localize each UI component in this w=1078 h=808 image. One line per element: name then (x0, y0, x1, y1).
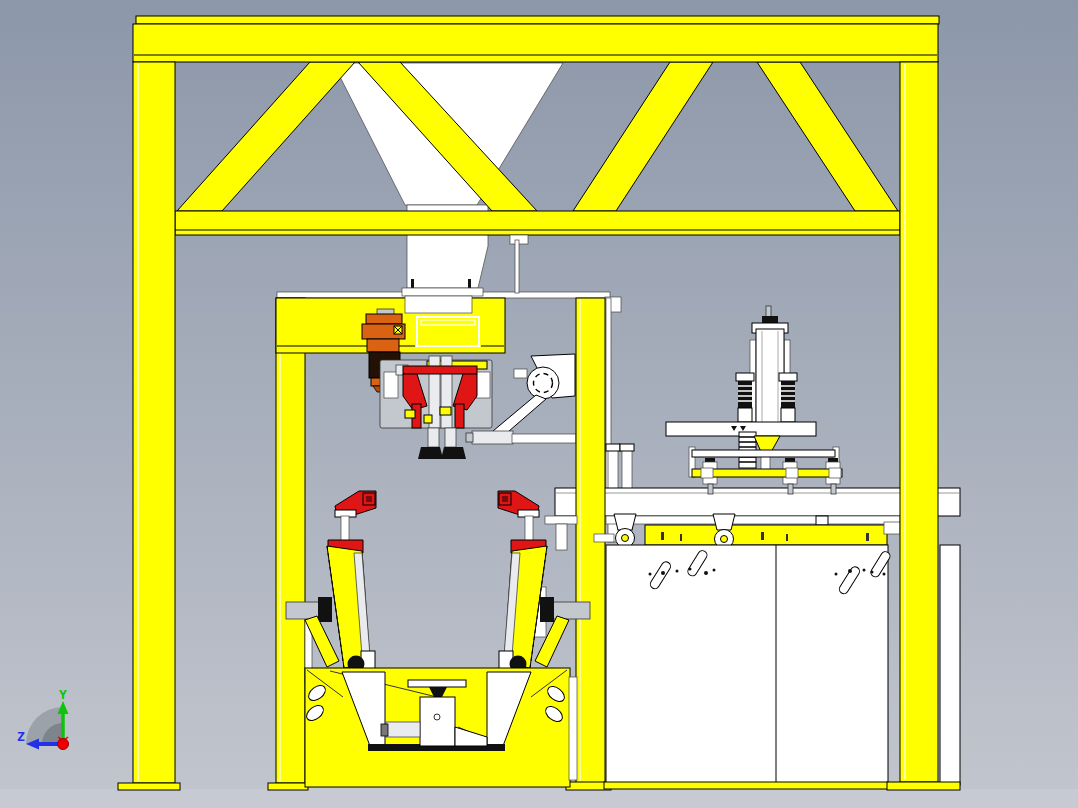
left-column-base (118, 783, 180, 790)
truss-bottom-chord (175, 211, 900, 235)
chute-bolt (468, 279, 471, 288)
gripper-cylinder-right (445, 428, 456, 447)
conveyor-beam-body (555, 488, 960, 516)
top-beam (133, 24, 938, 62)
roller-hub (622, 535, 629, 542)
strip-tab (816, 516, 828, 525)
cylinder-cap (606, 444, 620, 451)
head-tag (405, 410, 415, 418)
gripper-foot-right (441, 447, 466, 459)
hanger-rod (515, 240, 519, 293)
cad-viewport[interactable]: Y Z (0, 0, 1078, 808)
tower-stem (766, 306, 771, 317)
roller-hub (721, 536, 728, 543)
wheel-side-bracket (594, 534, 614, 542)
actuator-bracket (514, 369, 527, 378)
chute-bolt (411, 279, 414, 288)
magazine-rail-lower (692, 469, 842, 477)
base-side-strip (569, 677, 577, 780)
clamp-lever-block-core (502, 496, 508, 502)
clamp-lever-block-core (366, 496, 372, 502)
gripper-cylinder-left (428, 428, 439, 447)
inner-left-column-base (268, 783, 308, 790)
head-fitting (384, 372, 398, 398)
cylinder-cap (620, 444, 634, 451)
clamp-arm-strip-right (455, 404, 464, 428)
actuator-disc (527, 367, 559, 399)
linkage-cylinder (472, 431, 513, 444)
wheel-bracket (713, 514, 735, 530)
clamp-rod (525, 516, 533, 541)
base-table (408, 680, 466, 687)
slide-bracket-left (318, 597, 332, 622)
beam-junction-box[interactable] (415, 315, 481, 348)
axis-z-label: Z (17, 729, 25, 744)
rail-connector (786, 468, 798, 478)
magazine-rail-upper (692, 450, 835, 457)
model-canvas[interactable]: Y Z (0, 0, 1078, 808)
flank-foot-left (738, 408, 752, 422)
machine-base[interactable] (304, 668, 577, 787)
chute-neck (405, 296, 472, 313)
flank-bellows-left (738, 381, 752, 408)
cabinet-side-panel (940, 545, 960, 785)
linkage-cylinder-cap (466, 433, 473, 442)
top-beam-ledge (136, 16, 939, 24)
side-fitting-tee (556, 524, 567, 550)
motor-step-3 (367, 339, 399, 352)
flank-foot-right (781, 408, 795, 422)
head-fitting (476, 372, 490, 398)
base-motor (386, 722, 420, 737)
axis-x-ball[interactable] (58, 739, 69, 750)
rail-connector (829, 468, 841, 478)
flank-cap-right (779, 373, 797, 381)
head-tag (440, 407, 451, 415)
base-gearbox (420, 697, 455, 746)
clamp-rod (341, 516, 349, 541)
flank-cap-left (736, 373, 754, 381)
strip-end-bracket (884, 522, 900, 534)
axis-y-label: Y (59, 687, 67, 702)
hopper-chute-lower[interactable] (402, 288, 483, 313)
base-motor-cap (381, 724, 388, 736)
strip-top-bar (606, 516, 900, 524)
cabinet-sill (604, 782, 888, 789)
gripper-foot-left (418, 447, 443, 459)
left-column (133, 62, 175, 783)
slide-bracket-right (540, 597, 554, 622)
conveyor-beam[interactable] (555, 488, 960, 516)
rail-connector (701, 468, 713, 478)
wheel-bracket (614, 514, 636, 530)
right-column-base (887, 782, 960, 790)
chute-flange (402, 288, 483, 296)
clamp-ring-top (403, 366, 477, 374)
head-tag (424, 415, 432, 423)
floor-plane (0, 789, 1078, 808)
motor-step-1 (366, 314, 402, 324)
flank-bellows-right (781, 381, 795, 408)
side-fitting-bar (545, 516, 577, 524)
linkage-bar (512, 434, 576, 443)
